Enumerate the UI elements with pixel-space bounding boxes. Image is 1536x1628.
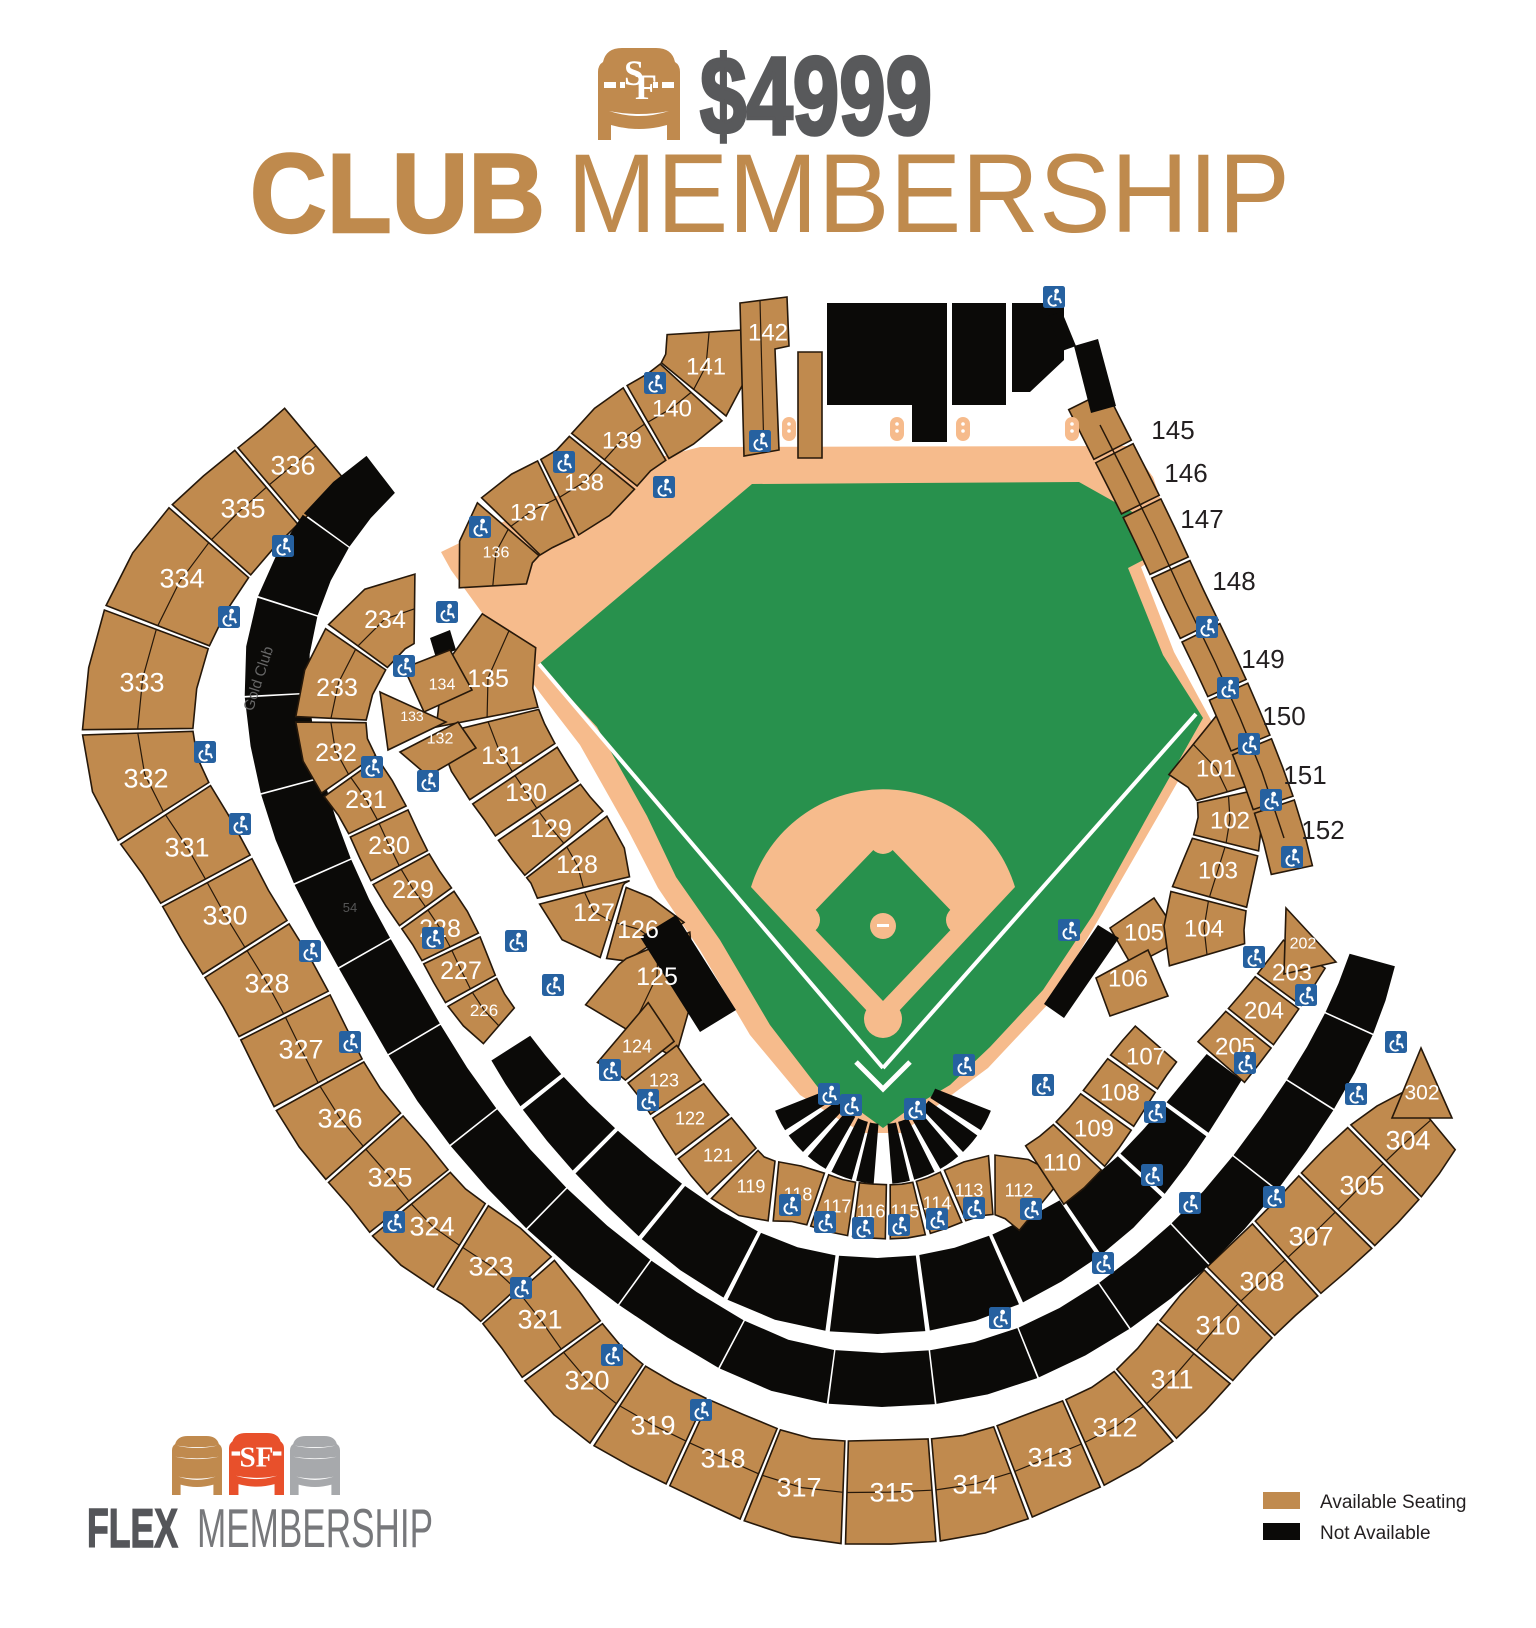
svg-text:137: 137 (510, 499, 550, 526)
svg-text:108: 108 (1100, 1079, 1140, 1106)
svg-text:139: 139 (602, 427, 642, 454)
svg-text:202: 202 (1290, 936, 1317, 953)
svg-text:F: F (635, 67, 657, 107)
svg-text:112: 112 (1005, 1180, 1034, 1200)
svg-text:110: 110 (1043, 1149, 1081, 1176)
svg-text:230: 230 (368, 832, 410, 860)
svg-text:315: 315 (869, 1477, 914, 1507)
svg-text:146: 146 (1164, 458, 1207, 488)
svg-text:302: 302 (1404, 1081, 1439, 1104)
svg-text:311: 311 (1150, 1364, 1193, 1394)
svg-text:335: 335 (220, 493, 265, 523)
svg-text:323: 323 (468, 1251, 513, 1281)
svg-text:122: 122 (675, 1108, 705, 1128)
svg-text:121: 121 (703, 1145, 733, 1165)
svg-text:101: 101 (1196, 755, 1236, 782)
svg-text:226: 226 (470, 1001, 498, 1020)
svg-text:308: 308 (1239, 1266, 1284, 1296)
svg-text:102: 102 (1210, 807, 1250, 834)
svg-text:128: 128 (556, 851, 598, 879)
svg-text:307: 307 (1288, 1221, 1333, 1251)
svg-text:203: 203 (1272, 959, 1312, 986)
svg-text:131: 131 (481, 742, 523, 770)
svg-text:147: 147 (1180, 504, 1223, 534)
svg-text:331: 331 (164, 832, 209, 862)
svg-text:151: 151 (1283, 760, 1326, 790)
svg-text:321: 321 (517, 1304, 562, 1334)
svg-text:107: 107 (1126, 1043, 1166, 1070)
svg-text:149: 149 (1241, 644, 1284, 674)
svg-text:313: 313 (1027, 1442, 1072, 1472)
svg-text:141: 141 (686, 353, 726, 380)
svg-text:332: 332 (123, 763, 168, 793)
svg-text:103: 103 (1198, 857, 1238, 884)
svg-text:FLEX: FLEX (87, 1497, 178, 1559)
svg-text:132: 132 (427, 731, 454, 748)
svg-text:129: 129 (530, 815, 572, 843)
svg-text:229: 229 (392, 876, 434, 904)
svg-text:232: 232 (315, 739, 357, 767)
svg-text:134: 134 (429, 677, 456, 694)
svg-text:334: 334 (159, 563, 204, 593)
svg-text:150: 150 (1262, 701, 1305, 731)
svg-text:Not Available: Not Available (1320, 1523, 1431, 1544)
svg-text:231: 231 (345, 786, 387, 814)
svg-text:130: 130 (505, 779, 547, 807)
svg-text:326: 326 (317, 1103, 362, 1133)
svg-text:CLUB: CLUB (250, 131, 545, 256)
svg-text:336: 336 (270, 450, 315, 480)
svg-text:138: 138 (564, 469, 604, 496)
svg-text:152: 152 (1301, 815, 1344, 845)
svg-text:125: 125 (636, 963, 678, 991)
svg-text:145: 145 (1151, 415, 1194, 445)
svg-text:234: 234 (364, 606, 406, 634)
svg-text:319: 319 (630, 1410, 675, 1440)
svg-text:142: 142 (748, 319, 788, 346)
svg-text:136: 136 (483, 545, 510, 562)
svg-text:Available Seating: Available Seating (1320, 1492, 1466, 1513)
svg-text:327: 327 (278, 1034, 323, 1064)
svg-text:123: 123 (649, 1070, 679, 1090)
svg-text:312: 312 (1092, 1412, 1137, 1442)
svg-text:124: 124 (622, 1036, 652, 1056)
svg-text:328: 328 (244, 968, 289, 998)
svg-text:204: 204 (1244, 997, 1284, 1024)
svg-text:140: 140 (652, 395, 692, 422)
svg-text:148: 148 (1212, 566, 1255, 596)
svg-text:109: 109 (1074, 1115, 1114, 1142)
svg-text:133: 133 (400, 708, 424, 724)
svg-text:227: 227 (440, 957, 482, 985)
svg-text:105: 105 (1124, 919, 1164, 946)
svg-text:305: 305 (1339, 1170, 1384, 1200)
svg-text:SF: SF (239, 1442, 273, 1474)
svg-text:324: 324 (409, 1211, 454, 1241)
svg-text:126: 126 (617, 916, 659, 944)
svg-text:MEMBERSHIP: MEMBERSHIP (197, 1497, 433, 1559)
svg-text:106: 106 (1108, 965, 1148, 992)
svg-text:314: 314 (952, 1469, 997, 1499)
svg-text:104: 104 (1184, 915, 1224, 942)
svg-text:317: 317 (776, 1472, 821, 1502)
svg-text:320: 320 (564, 1365, 609, 1395)
svg-text:330: 330 (202, 900, 247, 930)
svg-text:325: 325 (367, 1162, 412, 1192)
svg-text:318: 318 (700, 1443, 745, 1473)
svg-text:54: 54 (343, 900, 357, 915)
svg-text:119: 119 (737, 1176, 766, 1196)
svg-text:127: 127 (573, 899, 615, 927)
svg-text:233: 233 (316, 674, 358, 702)
svg-text:304: 304 (1385, 1125, 1430, 1155)
svg-text:135: 135 (467, 665, 509, 693)
svg-text:333: 333 (119, 667, 164, 697)
svg-text:MEMBERSHIP: MEMBERSHIP (567, 131, 1290, 256)
svg-text:310: 310 (1195, 1310, 1240, 1340)
